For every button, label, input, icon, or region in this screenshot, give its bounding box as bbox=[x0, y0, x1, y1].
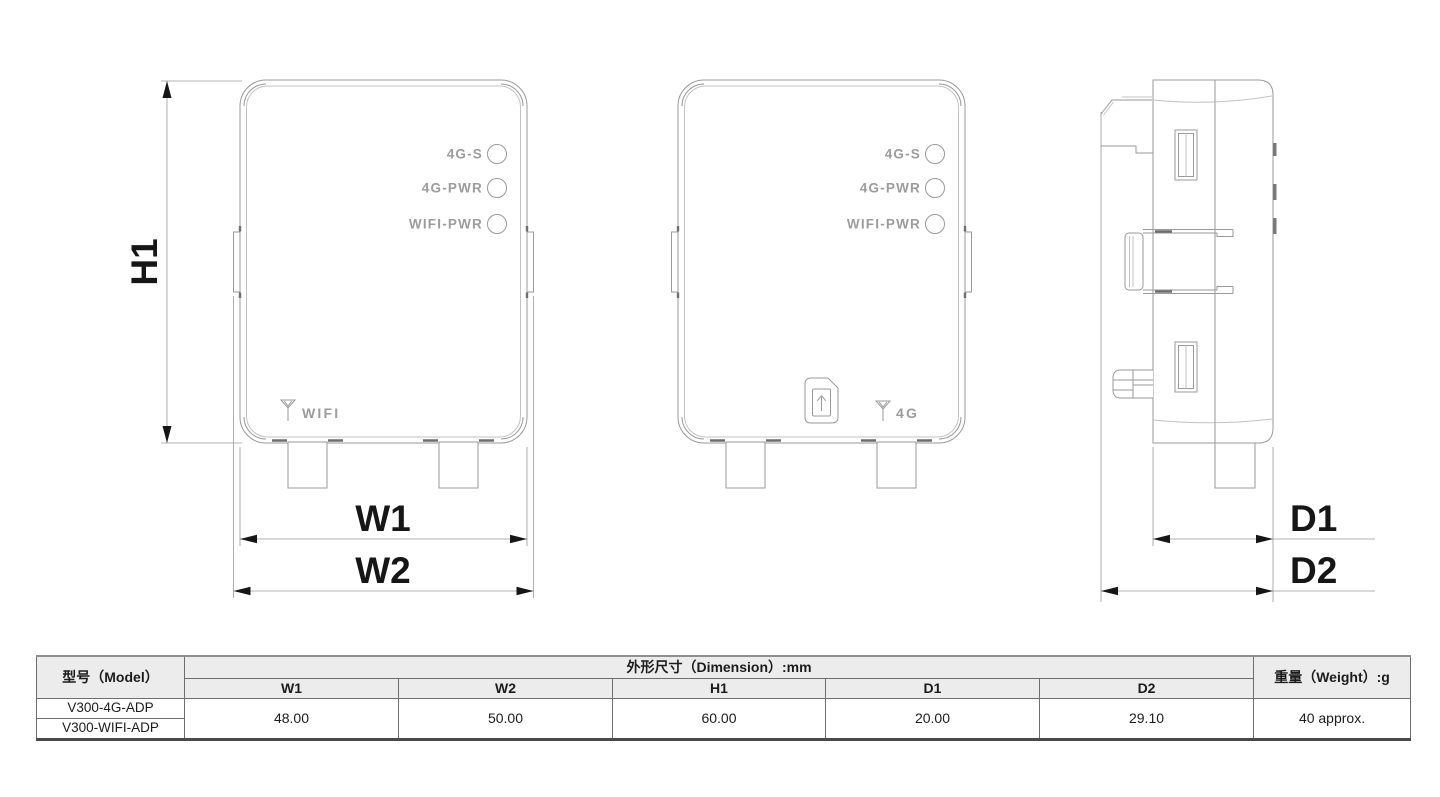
edge-tick bbox=[1273, 218, 1277, 234]
4g-port-label: 4G bbox=[896, 405, 919, 421]
dimension-group-header-cell: 外形尺寸（Dimension）:mm bbox=[185, 656, 1254, 678]
col-header-w2: W2 bbox=[399, 678, 613, 698]
led-label-4g-pwr: 4G-PWR bbox=[422, 181, 483, 196]
col-header-h1: H1 bbox=[613, 678, 826, 698]
model-name-wifi: V300-WIFI-ADP bbox=[37, 718, 185, 739]
side-foot bbox=[1215, 443, 1255, 488]
led-label-wifi-pwr: WIFI-PWR bbox=[409, 217, 483, 232]
edge-tick bbox=[1273, 184, 1277, 200]
led-label-4g-pwr: 4G-PWR bbox=[860, 181, 921, 196]
model-name-4g: V300-4G-ADP bbox=[37, 698, 185, 718]
d2-dimension: D2 bbox=[1101, 550, 1375, 595]
device-shell bbox=[234, 80, 534, 488]
w1-label: W1 bbox=[355, 498, 411, 539]
col-header-d1: D1 bbox=[826, 678, 1040, 698]
value-h1: 60.00 bbox=[613, 698, 826, 739]
col-header-d2: D2 bbox=[1040, 678, 1254, 698]
wifi-port-label: WIFI bbox=[302, 405, 340, 421]
vent-slot-lower bbox=[1175, 342, 1197, 392]
d1-label: D1 bbox=[1290, 498, 1337, 539]
value-d2: 29.10 bbox=[1040, 698, 1254, 739]
col-header-w1: W1 bbox=[185, 678, 399, 698]
value-d1: 20.00 bbox=[826, 698, 1040, 739]
led-label-4g-s: 4G-S bbox=[447, 147, 483, 162]
specification-table: 型号（Model） 外形尺寸（Dimension）:mm 重量（Weight）:… bbox=[36, 655, 1411, 741]
side-view bbox=[1101, 80, 1277, 602]
dimension-drawing-page: 4G-S 4G-PWR WIFI-PWR WIFI 4G-S 4G-PWR WI… bbox=[0, 0, 1440, 797]
front-view-4g: 4G-S 4G-PWR WIFI-PWR 4G bbox=[672, 80, 972, 488]
value-w1: 48.00 bbox=[185, 698, 399, 739]
edge-tick bbox=[1273, 143, 1277, 156]
top-bracket bbox=[1101, 97, 1153, 153]
weight-header-cell: 重量（Weight）:g bbox=[1254, 656, 1411, 698]
d1-dimension: D1 bbox=[1153, 447, 1375, 602]
model-header-cell: 型号（Model） bbox=[37, 656, 185, 698]
value-weight: 40 approx. bbox=[1254, 698, 1411, 739]
value-w2: 50.00 bbox=[399, 698, 613, 739]
device-shell bbox=[672, 80, 972, 488]
w1-dimension: W1 bbox=[240, 447, 527, 546]
front-view-wifi: 4G-S 4G-PWR WIFI-PWR WIFI bbox=[234, 80, 534, 488]
w2-label: W2 bbox=[355, 550, 411, 591]
led-label-4g-s: 4G-S bbox=[885, 147, 921, 162]
h1-label: H1 bbox=[124, 238, 165, 285]
vent-slot-upper bbox=[1175, 130, 1197, 180]
led-label-wifi-pwr: WIFI-PWR bbox=[847, 217, 921, 232]
h1-dimension: H1 bbox=[124, 81, 242, 443]
d2-label: D2 bbox=[1290, 550, 1337, 591]
bottom-hook bbox=[1113, 370, 1153, 398]
